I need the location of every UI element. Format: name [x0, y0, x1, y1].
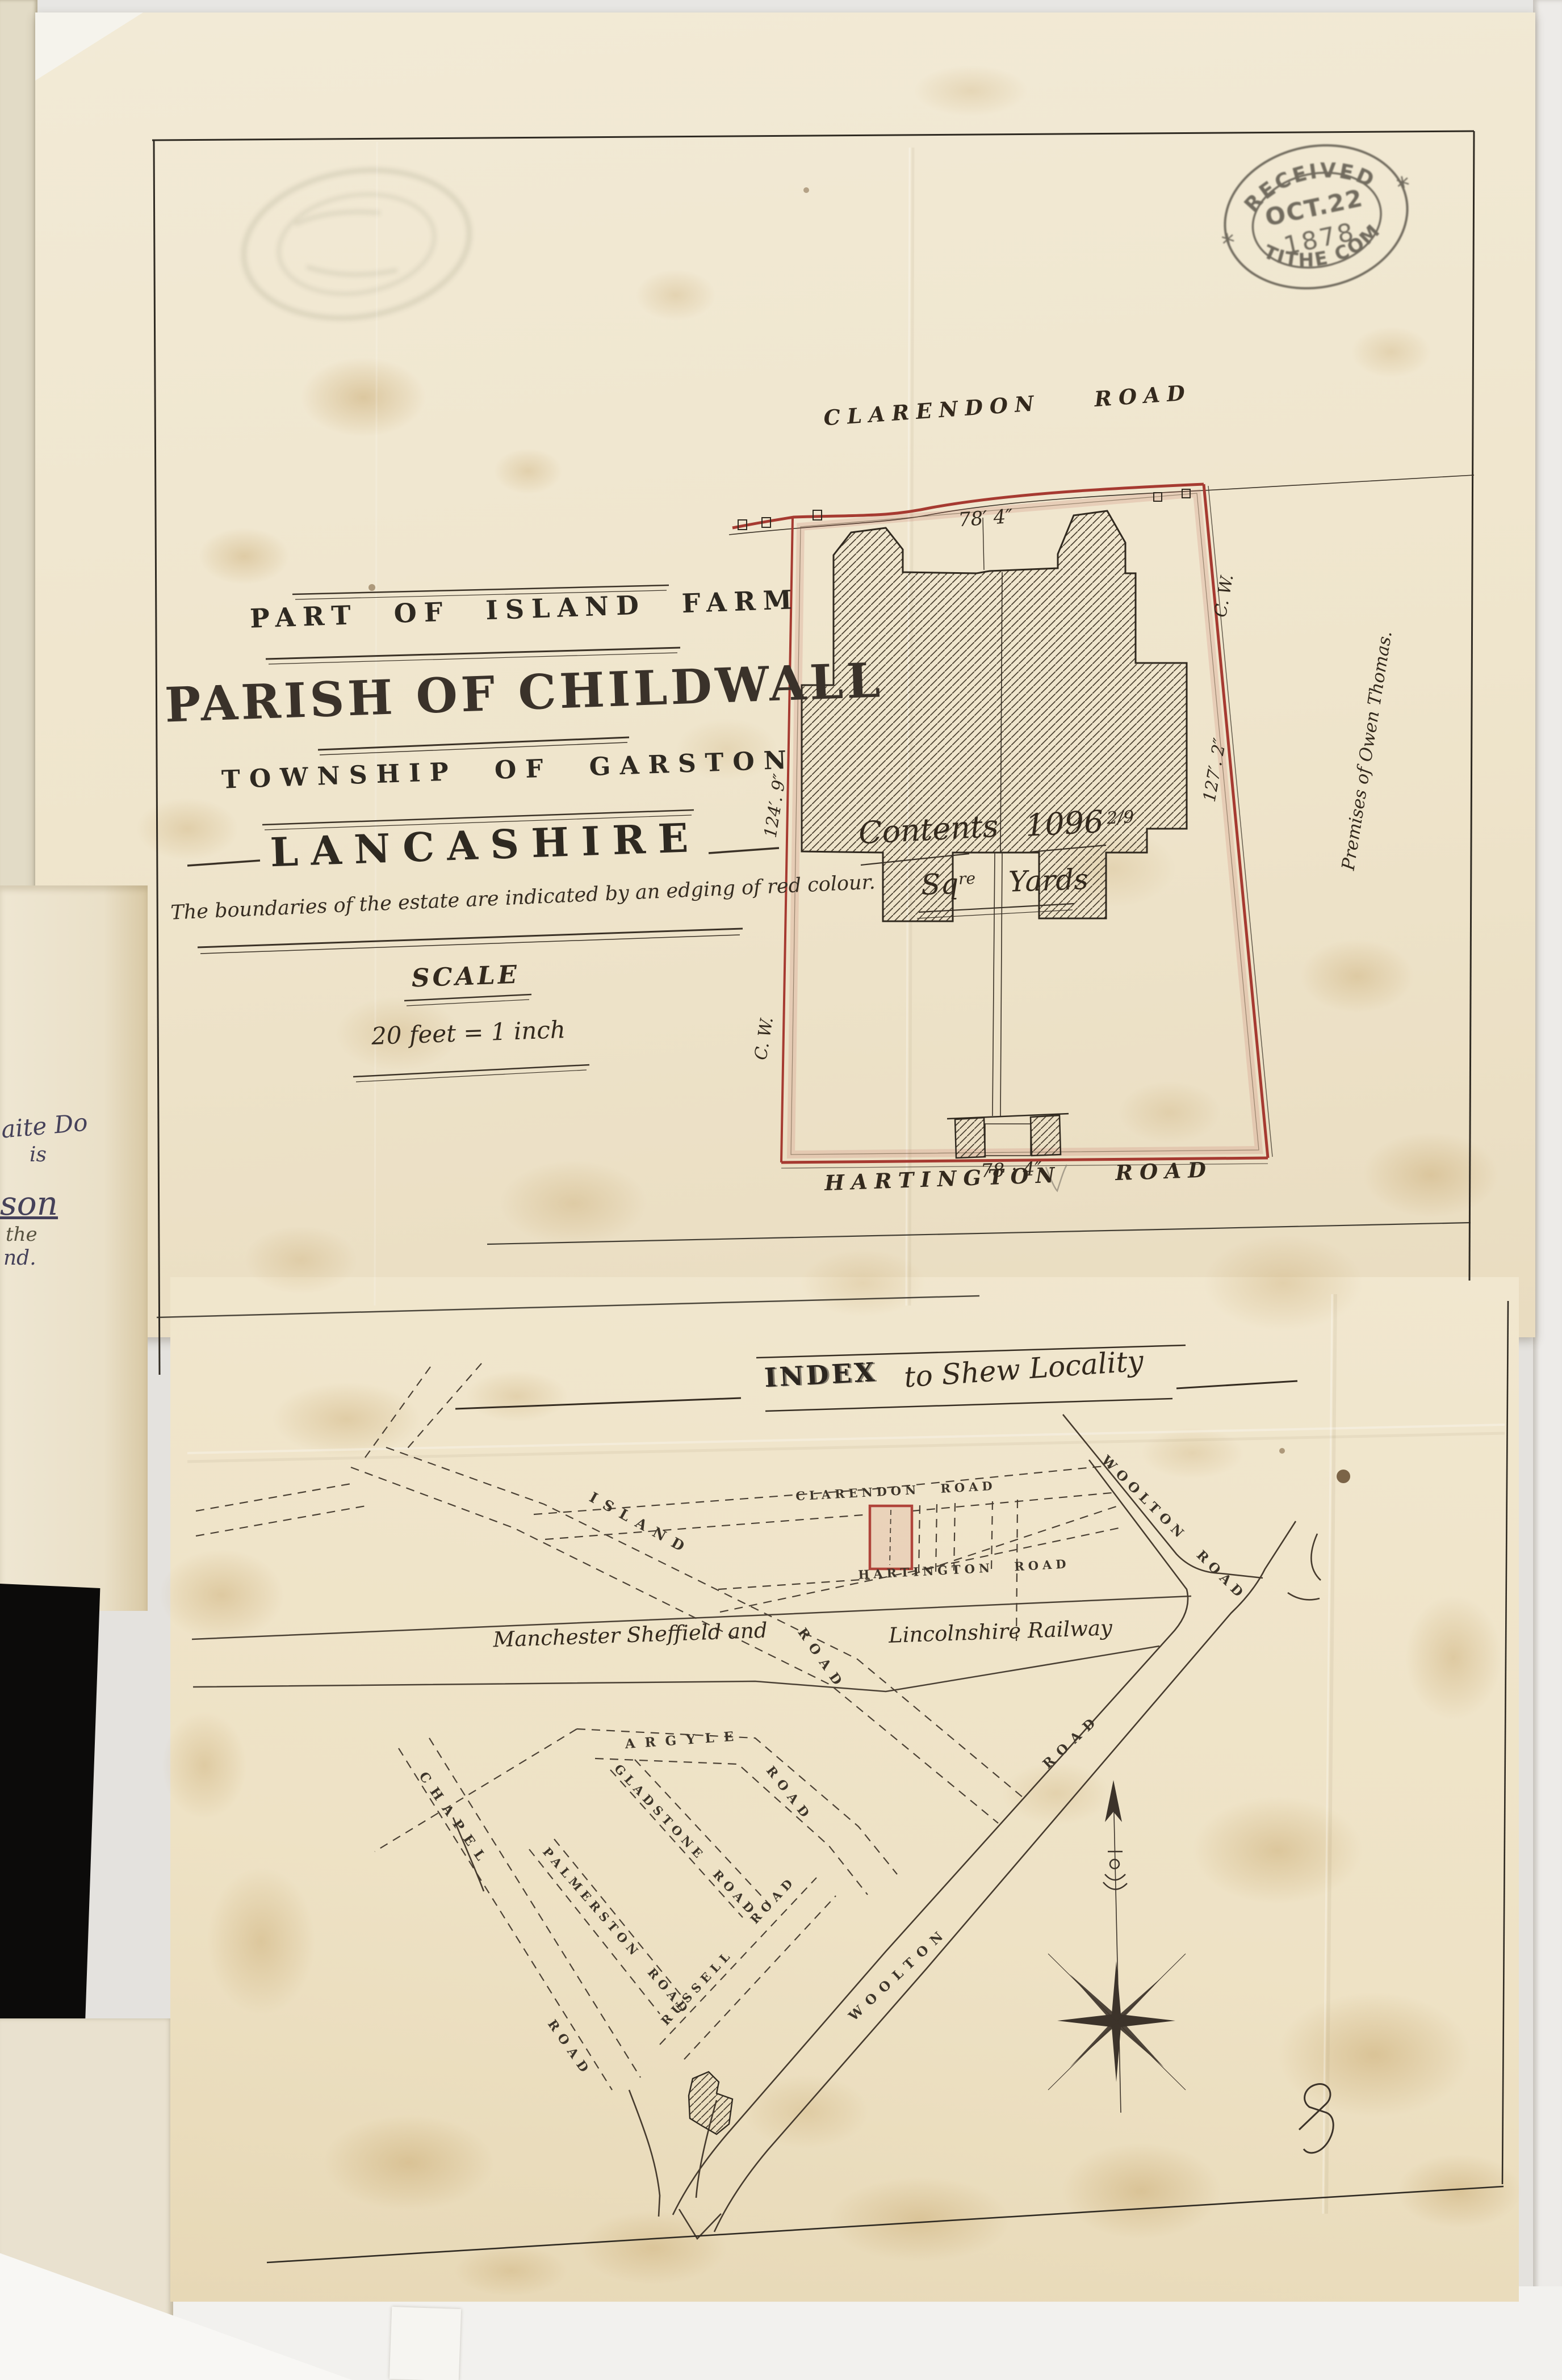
book-page-edge-strip [0, 0, 37, 999]
manuscript-fragment-5: nd. [3, 1248, 36, 1269]
manuscript-fragment-2: is [30, 1144, 47, 1166]
unit-yards: Yards [1008, 863, 1088, 899]
contents-value: 10962/9 [1025, 804, 1135, 842]
scale-label: SCALE [397, 962, 534, 993]
photo-right-margin [1533, 0, 1562, 2380]
index-heading-word: INDEX [764, 1358, 878, 1392]
scanned-estate-plan: RECEIVED TITHE COM OCT.22 1878 * * PART … [0, 0, 1562, 2380]
white-paper-tab [390, 2307, 461, 2380]
contents-units: SqreYards [920, 864, 1088, 900]
unit-sq-sup: re [958, 869, 975, 888]
contents-number: 1096 [1024, 804, 1104, 843]
contents-label: Contents [858, 811, 999, 850]
manuscript-fragment-4: the [6, 1225, 37, 1245]
manuscript-fragment-3: son [0, 1186, 58, 1221]
index-map-sheet [170, 1277, 1519, 2302]
photo-top-margin [0, 0, 1562, 14]
book-gutter-shadow [0, 1584, 102, 2038]
unit-sq: Sq [920, 867, 959, 901]
contents-fraction: 2/9 [1106, 807, 1134, 828]
